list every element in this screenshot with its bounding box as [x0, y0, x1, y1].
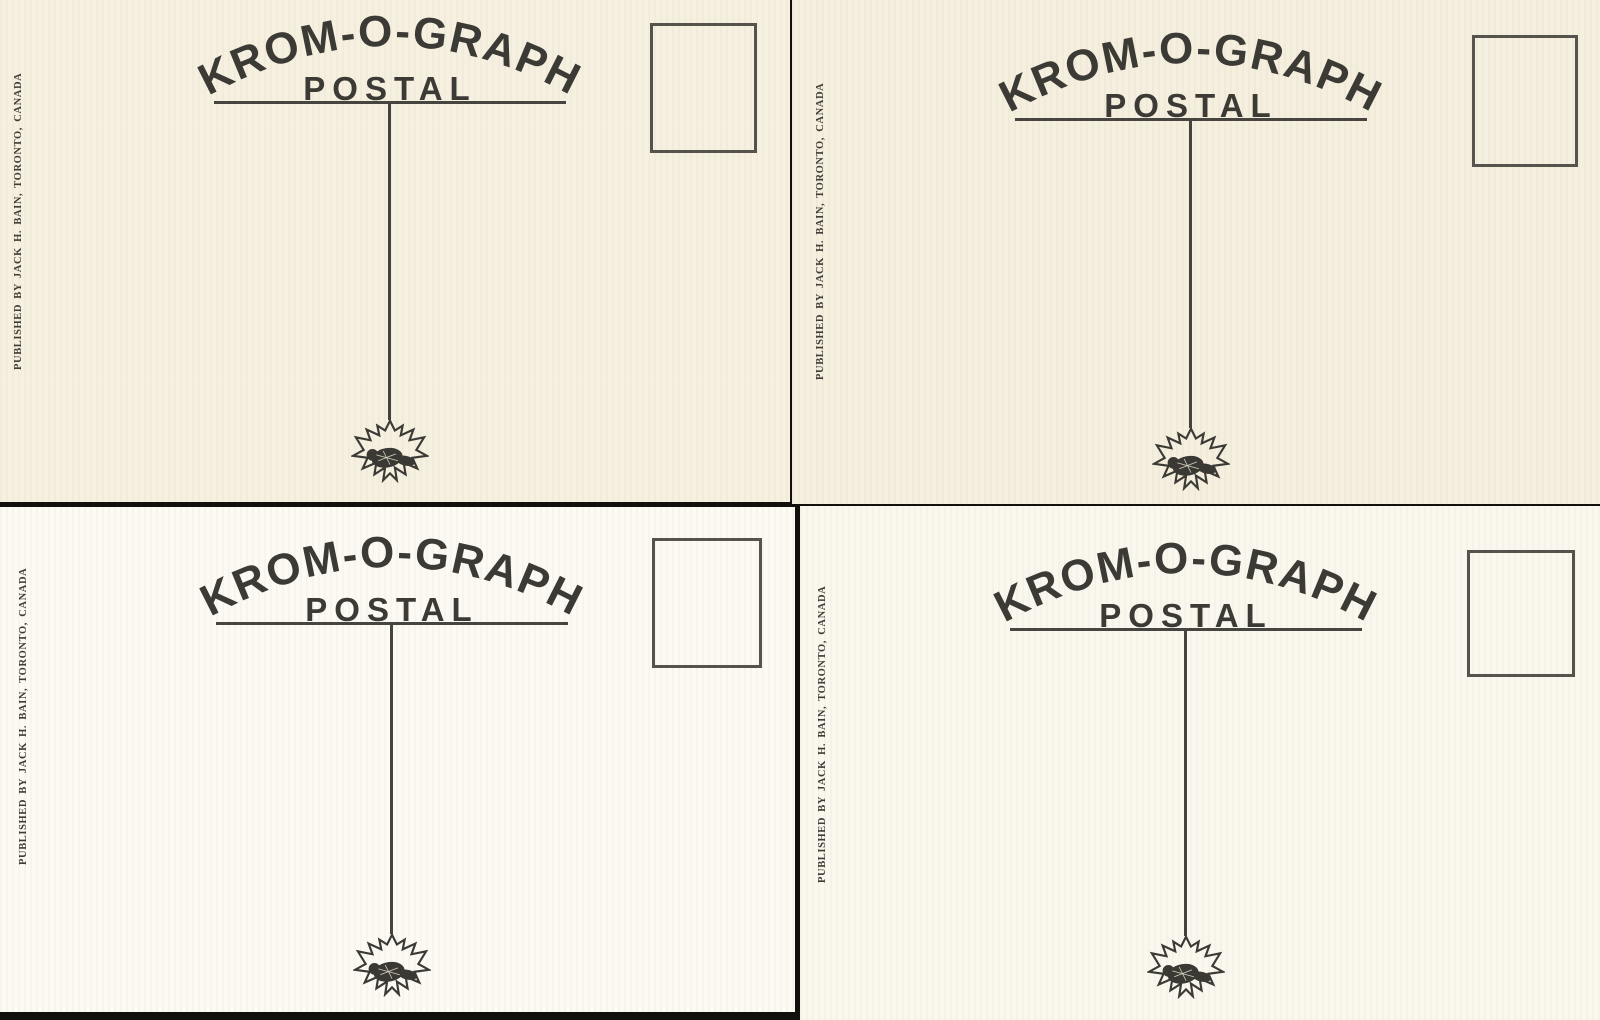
maple-leaf-beaver-icon — [1152, 425, 1230, 491]
maple-leaf-beaver-icon — [351, 417, 429, 483]
scanned-postcards-sheet: PUBLISHED BY JACK H. BAIN, TORONTO, CANA… — [0, 0, 1600, 1020]
publisher-credit: PUBLISHED BY JACK H. BAIN, TORONTO, CANA… — [815, 83, 826, 380]
postcard-back-top-left: PUBLISHED BY JACK H. BAIN, TORONTO, CANA… — [0, 0, 790, 502]
maple-leaf-beaver-icon — [353, 931, 431, 997]
postcard-back-bottom-right: PUBLISHED BY JACK H. BAIN, TORONTO, CANA… — [800, 506, 1600, 1020]
brand-header: KROM-O-GRAPH POSTAL — [971, 532, 1401, 636]
center-divider-line — [1184, 631, 1187, 936]
center-divider-line — [1189, 121, 1192, 428]
center-divider-line — [388, 104, 391, 420]
publisher-credit: PUBLISHED BY JACK H. BAIN, TORONTO, CANA… — [817, 586, 828, 883]
brand-header: KROM-O-GRAPH POSTAL — [175, 5, 605, 109]
postcard-back-bottom-left: PUBLISHED BY JACK H. BAIN, TORONTO, CANA… — [0, 507, 795, 1012]
stamp-box — [1472, 35, 1578, 167]
center-divider-line — [390, 625, 393, 934]
brand-header: KROM-O-GRAPH POSTAL — [177, 526, 607, 630]
publisher-credit: PUBLISHED BY JACK H. BAIN, TORONTO, CANA… — [18, 568, 29, 865]
publisher-credit: PUBLISHED BY JACK H. BAIN, TORONTO, CANA… — [13, 73, 24, 370]
brand-header: KROM-O-GRAPH POSTAL — [976, 22, 1406, 126]
postcard-back-top-right: PUBLISHED BY JACK H. BAIN, TORONTO, CANA… — [792, 0, 1600, 504]
stamp-box — [652, 538, 762, 668]
maple-leaf-beaver-icon — [1147, 933, 1225, 999]
stamp-box — [1467, 550, 1575, 677]
stamp-box — [650, 23, 757, 153]
